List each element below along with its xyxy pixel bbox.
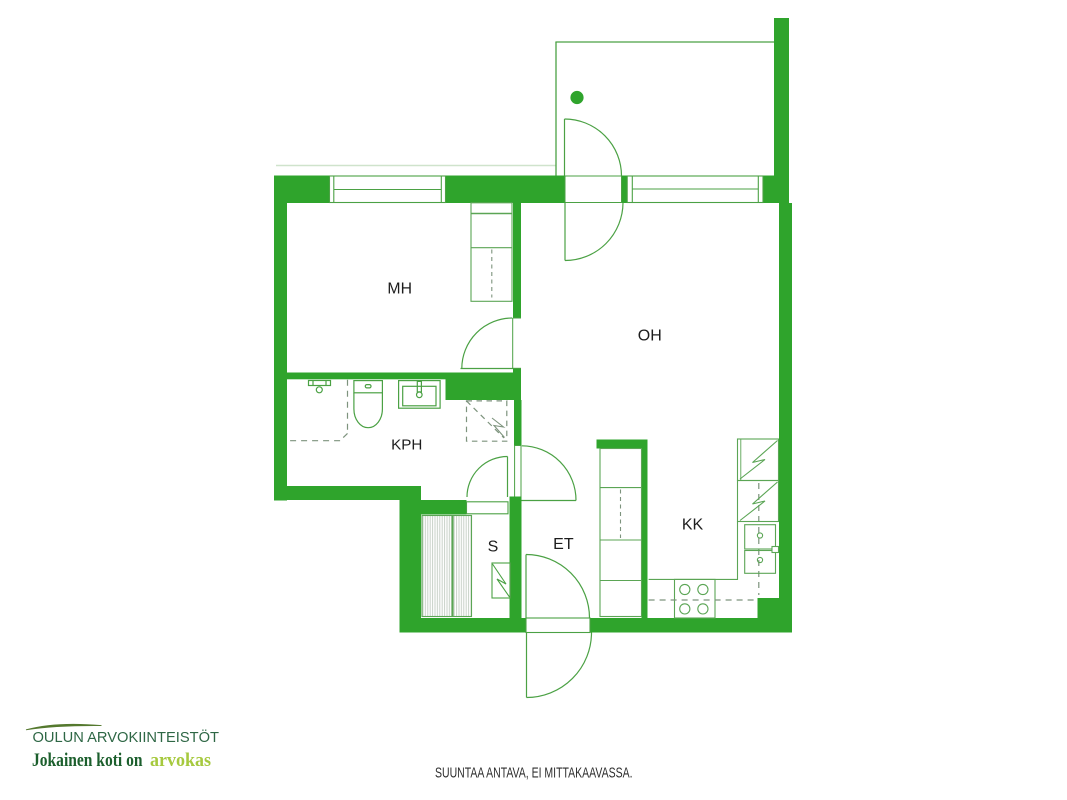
svg-text:OH: OH	[638, 327, 662, 344]
svg-text:SUUNTAA ANTAVA, EI MITTAKAAVAS: SUUNTAA ANTAVA, EI MITTAKAAVASSA.	[435, 765, 633, 782]
svg-text:arvokas: arvokas	[150, 750, 211, 771]
svg-text:OULUN ARVOKIINTEISTÖT: OULUN ARVOKIINTEISTÖT	[33, 728, 220, 746]
svg-text:KK: KK	[682, 517, 704, 534]
svg-text:S: S	[488, 539, 499, 556]
svg-text:Jokainen koti on: Jokainen koti on	[32, 750, 143, 771]
svg-text:MH: MH	[387, 280, 412, 297]
svg-text:KPH: KPH	[391, 437, 422, 454]
svg-text:ET: ET	[553, 536, 574, 553]
